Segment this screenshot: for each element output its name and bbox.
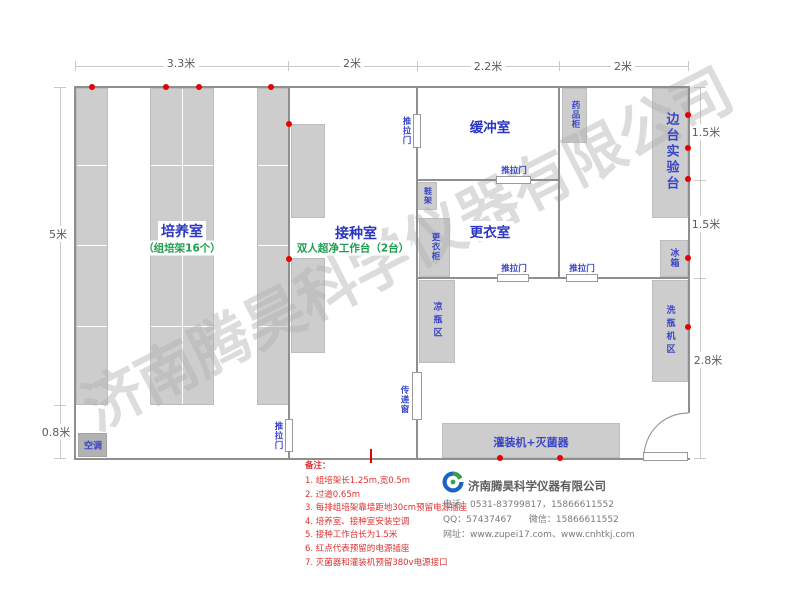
bottle-washer-label: 洗瓶机区 xyxy=(664,305,677,357)
wall-buffer-bottom xyxy=(417,179,559,181)
power-outlet-dot xyxy=(286,256,292,262)
room-sublabel-inoculation: 双人超净工作台（2台） xyxy=(295,241,411,256)
dim-label-right-3: 2.8米 xyxy=(691,352,726,368)
dim-tick xyxy=(288,61,289,71)
medicine-cabinet-label: 药品柜 xyxy=(569,101,581,130)
clean-bench-1 xyxy=(291,124,325,218)
room-label-cultivation: 培养室 xyxy=(158,221,206,241)
sliding-door xyxy=(285,419,293,452)
sliding-door-label: 推拉门 xyxy=(272,422,284,451)
power-outlet-dot xyxy=(685,145,691,151)
dim-tick xyxy=(559,61,560,71)
dim-line-right xyxy=(700,87,701,459)
sliding-door xyxy=(566,274,598,282)
dim-label-top-1: 3.3米 xyxy=(164,55,199,71)
dim-tick xyxy=(694,180,706,181)
dim-tick xyxy=(54,458,66,459)
dim-tick xyxy=(54,405,66,406)
dim-tick xyxy=(417,61,418,71)
wall-right-upper xyxy=(688,86,690,413)
transfer-window xyxy=(412,372,422,420)
filling-machine-label: 灌装机+灭菌器 xyxy=(493,434,568,450)
room-label-changing: 更衣室 xyxy=(467,221,514,241)
room-label-buffer: 缓冲室 xyxy=(467,116,514,136)
power-outlet-dot xyxy=(685,324,691,330)
wardrobe-label: 更衣柜 xyxy=(429,233,441,262)
sliding-door-label: 推拉门 xyxy=(501,262,527,274)
dim-label-top-4: 2米 xyxy=(611,58,635,74)
transfer-window-label: 传递窗 xyxy=(398,386,410,415)
company-wechat: 微信：15866611552 xyxy=(529,515,619,525)
dim-tick xyxy=(694,87,706,88)
side-bench-label: 边台实验台 xyxy=(662,112,681,192)
shelf-column-1 xyxy=(76,88,108,405)
floor-plan: 济南腾昊科学仪器有限公司 3.3米 2米 2.2米 2米 5米 0.8米 1.5… xyxy=(0,0,800,600)
clean-bench-2 xyxy=(291,258,325,353)
air-conditioner-label: 空调 xyxy=(84,439,102,452)
company-website: 网址：www.zupei17.com、www.cnhtkj.com xyxy=(443,527,635,540)
power-outlet-dot xyxy=(557,455,563,461)
power-outlet-dot xyxy=(685,176,691,182)
power-outlet-dot xyxy=(685,255,691,261)
dim-tick xyxy=(694,278,706,279)
sliding-door xyxy=(413,114,421,148)
dim-label-top-3: 2.2米 xyxy=(471,58,506,74)
sliding-door-label: 推拉门 xyxy=(501,164,527,176)
shoe-rack-label: 鞋架 xyxy=(423,187,434,205)
sliding-door xyxy=(496,176,531,184)
sliding-door-label: 推拉门 xyxy=(400,117,412,146)
dim-label-right-2: 1.5米 xyxy=(689,216,724,232)
dim-tick xyxy=(694,458,706,459)
wall-buffer-right xyxy=(558,86,560,279)
dim-label-left-1: 5米 xyxy=(46,226,70,242)
power-outlet-dot xyxy=(286,121,292,127)
company-qq: QQ：57437467 微信：15866611552 xyxy=(443,512,619,525)
dim-tick xyxy=(75,61,76,71)
note-item: 7. 灭菌器和灌装机预留380v电源接口 xyxy=(305,557,467,571)
power-outlet-dot xyxy=(685,112,691,118)
dim-label-right-1: 1.5米 xyxy=(689,124,724,140)
wall-cultivation-inoculation xyxy=(288,86,290,460)
company-qq-number: QQ：57437467 xyxy=(443,515,512,525)
power-outlet-dot xyxy=(268,84,274,90)
dim-tick xyxy=(54,87,66,88)
power-outlet-dot xyxy=(196,84,202,90)
room-sublabel-cultivation: （组培架16个） xyxy=(141,241,223,256)
dim-tick xyxy=(688,61,689,71)
dim-label-top-2: 2米 xyxy=(340,55,364,71)
dim-line-left xyxy=(60,87,61,459)
shelf-column-4 xyxy=(257,88,289,405)
power-outlet-dot xyxy=(163,84,169,90)
fridge-label: 冰箱 xyxy=(668,248,681,268)
sliding-door-label: 推拉门 xyxy=(569,262,595,274)
entrance-door-leaf xyxy=(643,452,688,461)
sliding-door xyxy=(497,274,529,282)
power-outlet-dot xyxy=(497,455,503,461)
bottle-cooling-label: 凉瓶区 xyxy=(431,302,444,341)
company-name: 济南腾昊科学仪器有限公司 xyxy=(468,478,606,494)
wall-changing-bottom xyxy=(417,277,690,279)
power-outlet-dot xyxy=(89,84,95,90)
company-logo xyxy=(441,470,465,494)
power-outlet-mark xyxy=(370,449,372,463)
wall-left xyxy=(74,86,76,460)
note-item: 6. 红点代表预留的电源插座 xyxy=(305,543,467,557)
company-phone: 电话：0531-83799817，15866611552 xyxy=(443,497,614,510)
dim-label-left-2: 0.8米 xyxy=(39,424,74,440)
